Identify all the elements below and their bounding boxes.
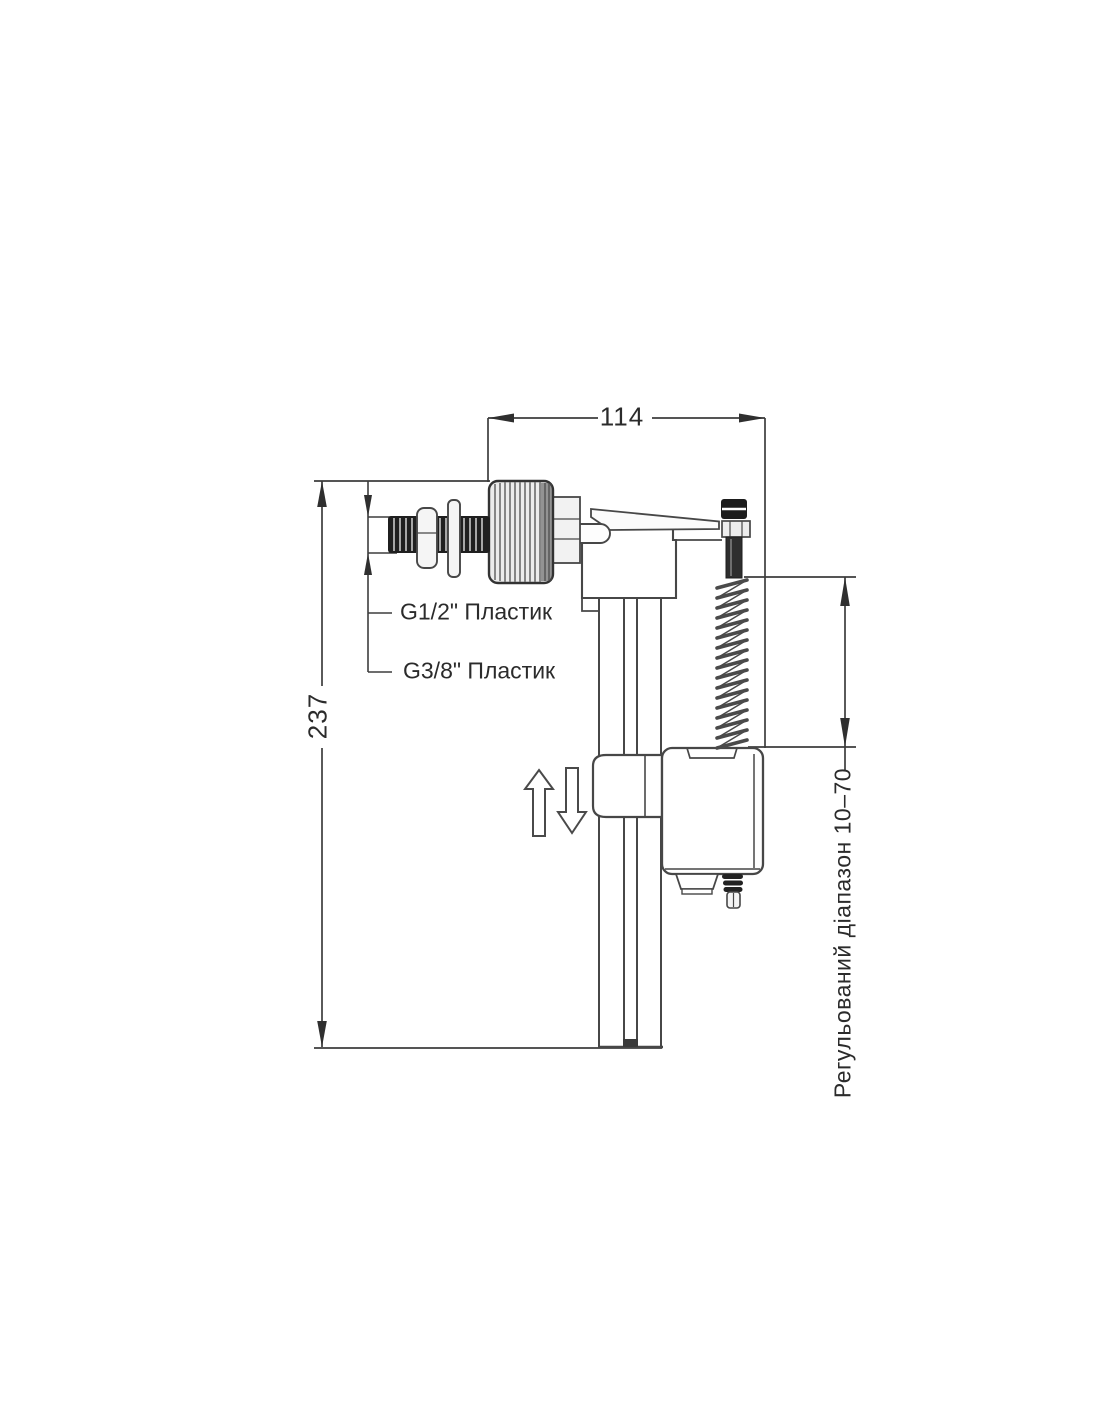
shank-nut — [417, 508, 437, 568]
mounting-washer — [448, 500, 460, 577]
dim-height-label: 237 — [303, 693, 334, 739]
float-foot — [676, 874, 718, 889]
thread-g38-label: G3/8" Пластик — [403, 658, 555, 685]
valve-column — [582, 598, 663, 1047]
thread-g12-label: G1/2" Пластик — [400, 599, 552, 626]
inlet-shank — [388, 500, 490, 577]
float-nipple — [722, 874, 743, 908]
adjustment-rod — [721, 499, 750, 578]
up-arrow-icon — [525, 770, 553, 836]
adjustable-range-label: Регульований діапазон 10–70 — [830, 768, 857, 1098]
spring — [717, 580, 747, 748]
float-cup — [662, 748, 763, 908]
hex-section — [553, 497, 580, 563]
knurled-nut — [489, 481, 553, 583]
down-arrow-icon — [558, 768, 586, 833]
range-dimension-line — [744, 577, 856, 770]
fill-valve-technical-drawing: 114 237 G1/2" Пластик G3/8" Пластик Регу… — [0, 0, 1100, 1422]
float-arm — [591, 509, 719, 530]
float-clip — [593, 755, 662, 817]
technical-drawing-canvas — [0, 0, 1100, 1422]
dim-width-label: 114 — [600, 402, 644, 433]
thread-dimension-line — [364, 481, 397, 672]
